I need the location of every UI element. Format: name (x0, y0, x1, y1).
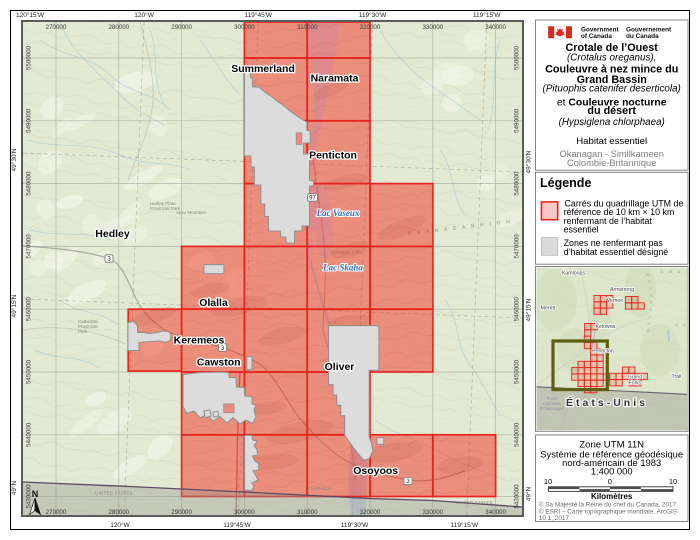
svg-text:5480000: 5480000 (514, 171, 521, 196)
svg-text:Naramata: Naramata (311, 73, 359, 85)
svg-text:330000: 330000 (422, 509, 443, 516)
svg-text:119°30'W: 119°30'W (341, 521, 369, 529)
svg-text:Park: Park (78, 329, 88, 334)
svg-text:Penticton: Penticton (592, 348, 614, 354)
svg-text:97: 97 (309, 196, 316, 202)
svg-text:essentiel: essentiel (564, 225, 599, 235)
svg-text:120°15'W: 120°15'W (16, 11, 45, 19)
svg-text:Keremeos: Keremeos (174, 335, 225, 347)
svg-text:Summerland: Summerland (231, 63, 295, 75)
svg-text:49°30'N: 49°30'N (525, 150, 533, 173)
svg-text:0: 0 (608, 477, 612, 486)
svg-text:Lac Vaseux: Lac Vaseux (316, 208, 360, 218)
svg-text:A: A (649, 307, 652, 312)
svg-text:120°W: 120°W (134, 11, 154, 19)
svg-text:119°45'W: 119°45'W (245, 11, 273, 19)
svg-text:Hedley: Hedley (95, 228, 130, 240)
svg-text:10: 10 (669, 477, 677, 486)
svg-text:5460000: 5460000 (514, 297, 521, 322)
svg-text:5460000: 5460000 (26, 297, 33, 322)
svg-text:N: N (647, 321, 650, 326)
svg-text:N: N (649, 293, 652, 298)
svg-text:I: I (649, 314, 650, 319)
svg-text:d’Okanagan: d’Okanagan (540, 406, 565, 411)
svg-text:Lac Skaha: Lac Skaha (322, 263, 363, 273)
svg-text:310000: 310000 (297, 509, 318, 516)
svg-text:© Sa Majesté la Reine du chef: © Sa Majesté la Reine du chef du Canada,… (539, 501, 677, 509)
svg-text:(Crotalus oreganus),: (Crotalus oreganus), (567, 53, 656, 64)
svg-text:UNITED STATES: UNITED STATES (455, 500, 493, 505)
svg-text:5430000: 5430000 (514, 484, 521, 509)
svg-text:5470000: 5470000 (514, 234, 521, 259)
svg-text:U: U (649, 286, 652, 291)
svg-text:T: T (650, 300, 653, 305)
svg-text:340000: 340000 (485, 24, 506, 31)
svg-text:Vernon: Vernon (607, 298, 624, 304)
svg-text:330000: 330000 (422, 24, 443, 31)
svg-text:270000: 270000 (46, 509, 67, 516)
svg-text:119°30'W: 119°30'W (359, 11, 387, 19)
svg-text:Olalla: Olalla (199, 297, 228, 309)
svg-text:120°W: 120°W (110, 521, 130, 529)
svg-text:Habitat essentiel: Habitat essentiel (576, 136, 647, 147)
svg-text:Armstrong: Armstrong (610, 287, 634, 293)
svg-text:10: 10 (544, 477, 552, 486)
svg-text:États-Unis: États-Unis (566, 396, 648, 409)
svg-text:270000: 270000 (46, 24, 67, 31)
svg-text:1:400 000: 1:400 000 (591, 465, 633, 476)
svg-text:5500000: 5500000 (26, 45, 33, 70)
svg-text:Légende: Légende (540, 176, 591, 190)
svg-text:of Canada: of Canada (581, 33, 612, 40)
svg-text:S: S (646, 328, 649, 333)
svg-text:(Hypsiglena chlorphaea): (Hypsiglena chlorphaea) (559, 117, 665, 128)
svg-text:119°15'W: 119°15'W (473, 11, 501, 19)
svg-text:CANADA: CANADA (308, 486, 332, 491)
svg-text:Osoyoos: Osoyoos (353, 465, 398, 477)
svg-text:du désert: du désert (587, 105, 636, 117)
svg-text:Cawston: Cawston (197, 357, 241, 369)
svg-text:310000: 310000 (297, 24, 318, 31)
svg-text:5500000: 5500000 (514, 45, 521, 70)
svg-text:(Pituophis catenifer desertico: (Pituophis catenifer deserticola) (543, 83, 681, 94)
svg-text:Kilomètres: Kilomètres (591, 492, 633, 501)
svg-text:5470000: 5470000 (26, 234, 33, 259)
svg-text:M: M (646, 272, 650, 277)
svg-text:N: N (32, 489, 39, 499)
svg-text:Colombie-Britannique: Colombie-Britannique (567, 158, 656, 168)
svg-text:Kelowna: Kelowna (596, 324, 616, 330)
svg-text:5480000: 5480000 (26, 171, 33, 196)
svg-text:d’habitat essentiel désigné: d’habitat essentiel désigné (564, 247, 669, 257)
svg-text:5490000: 5490000 (514, 108, 521, 133)
svg-text:280000: 280000 (108, 509, 129, 516)
svg-text:5440000: 5440000 (514, 422, 521, 447)
svg-text:49°15'N: 49°15'N (525, 298, 533, 321)
svg-text:5450000: 5450000 (26, 359, 33, 384)
svg-text:5490000: 5490000 (26, 108, 33, 133)
svg-text:119°45'W: 119°45'W (223, 521, 251, 529)
svg-text:UNITED STATES: UNITED STATES (95, 491, 133, 496)
svg-text:5450000: 5450000 (514, 359, 521, 384)
svg-text:Kamloops: Kamloops (562, 271, 585, 277)
svg-text:49°30'N: 49°30'N (10, 148, 18, 171)
svg-text:49°N: 49°N (525, 486, 533, 501)
svg-text:320000: 320000 (360, 509, 381, 516)
svg-text:300000: 300000 (234, 24, 255, 31)
svg-text:340000: 340000 (485, 509, 506, 516)
svg-text:O: O (648, 279, 652, 284)
svg-text:119°15'W: 119°15'W (451, 521, 479, 529)
svg-text:Merritt: Merritt (541, 306, 556, 312)
svg-text:320000: 320000 (360, 24, 381, 31)
svg-text:280000: 280000 (108, 24, 129, 31)
svg-text:290000: 290000 (171, 509, 192, 516)
svg-text:290000: 290000 (171, 24, 192, 31)
svg-text:5440000: 5440000 (26, 422, 33, 447)
svg-text:Forks: Forks (629, 381, 642, 387)
svg-text:10.1, 2017: 10.1, 2017 (539, 515, 570, 522)
svg-text:300000: 300000 (234, 509, 255, 516)
svg-text:49°N: 49°N (10, 480, 18, 495)
svg-text:49°15'N: 49°15'N (10, 294, 18, 317)
svg-text:du Canada: du Canada (626, 33, 659, 40)
svg-text:U M B I A: U M B I A (660, 269, 697, 274)
svg-text:Trail: Trail (672, 374, 682, 380)
svg-text:Oliver: Oliver (325, 361, 355, 373)
svg-text:Apex Mountain: Apex Mountain (176, 210, 207, 215)
svg-text:Penticton: Penticton (309, 150, 357, 162)
